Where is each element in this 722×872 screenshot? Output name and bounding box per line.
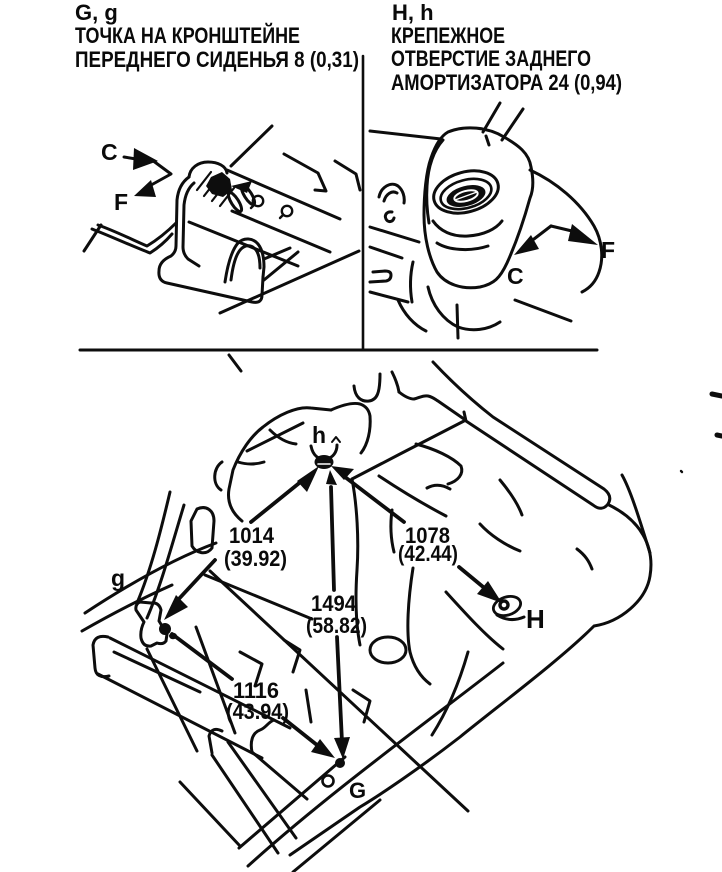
svg-text:ОТВЕРСТИЕ ЗАДНЕГО: ОТВЕРСТИЕ ЗАДНЕГО <box>391 46 591 71</box>
svg-text:(43.94): (43.94) <box>226 699 289 724</box>
svg-text:h: h <box>312 422 326 448</box>
svg-text:(39.92): (39.92) <box>224 546 287 571</box>
svg-text:F: F <box>114 189 128 215</box>
svg-text:ПЕРЕДНЕГО СИДЕНЬЯ 8 (0,31): ПЕРЕДНЕГО СИДЕНЬЯ 8 (0,31) <box>75 47 359 72</box>
svg-text:G, g: G, g <box>75 0 118 25</box>
svg-text:(58.82): (58.82) <box>306 613 367 638</box>
svg-text:C: C <box>101 139 118 165</box>
svg-text:АМОРТИЗАТОРА 24 (0,94): АМОРТИЗАТОРА 24 (0,94) <box>391 70 622 95</box>
svg-text:H: H <box>526 604 545 634</box>
svg-text:(42.44): (42.44) <box>398 541 458 566</box>
svg-text:F: F <box>601 237 615 263</box>
svg-text:H, h: H, h <box>392 0 434 25</box>
svg-text:C: C <box>507 263 524 289</box>
svg-text:ТОЧКА НА КРОНШТЕЙНЕ: ТОЧКА НА КРОНШТЕЙНЕ <box>75 23 300 48</box>
svg-text:КРЕПЕЖНОЕ: КРЕПЕЖНОЕ <box>391 23 505 48</box>
svg-text:G: G <box>349 778 366 803</box>
svg-text:1014: 1014 <box>229 523 275 548</box>
svg-text:g: g <box>111 565 125 591</box>
